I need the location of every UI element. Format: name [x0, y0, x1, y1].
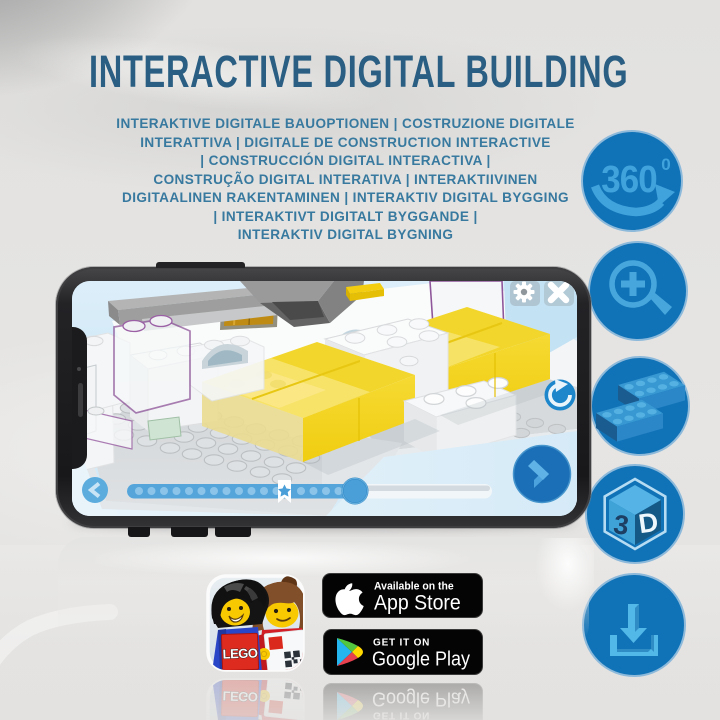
svg-text:App Store: App Store [374, 592, 461, 615]
svg-text:Google Play: Google Play [372, 649, 470, 671]
svg-text:360: 360 [601, 158, 657, 201]
svg-text:GET IT ON: GET IT ON [373, 638, 430, 649]
svg-text:0: 0 [661, 155, 670, 174]
svg-text:Available on the: Available on the [374, 580, 454, 592]
svg-text:D: D [637, 507, 660, 539]
svg-text:LEGO: LEGO [222, 645, 258, 661]
